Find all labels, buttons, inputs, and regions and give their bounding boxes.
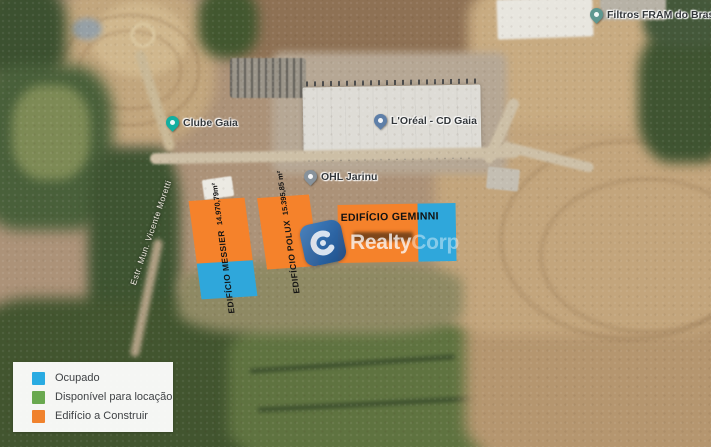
- terrain-building-roof: [486, 166, 520, 191]
- legend-swatch-disponivel: [32, 391, 45, 404]
- terrain-pasture: [12, 85, 90, 180]
- legend-item-disponivel: Disponível para locação: [32, 391, 167, 404]
- terrain-field: [228, 318, 503, 447]
- terrain-building-roof: [496, 0, 593, 40]
- satellite-map-view: Estr. Mun. Vicente Moretti EDIFÍCIO MESS…: [0, 0, 711, 447]
- legend-swatch-ocupado: [32, 372, 45, 385]
- map-pin-ohl-jarinu[interactable]: OHL Jarinu: [304, 170, 377, 183]
- map-pin-label: Filtros FRAM do Brasil: [607, 9, 711, 21]
- watermark-text: RealtyCorp: [350, 231, 459, 255]
- status-legend: Ocupado Disponível para locação Edifício…: [13, 362, 173, 432]
- legend-label: Disponível para locação: [55, 391, 172, 403]
- realtycorp-logo-icon: [298, 218, 348, 268]
- map-pin-label: L'Oréal - CD Gaia: [391, 115, 477, 127]
- terrain-forest: [638, 28, 711, 163]
- swirl-glyph: [303, 223, 343, 263]
- legend-label: Edifício a Construir: [55, 410, 148, 422]
- realtycorp-watermark: RealtyCorp: [302, 222, 459, 264]
- map-pin-clube-gaia[interactable]: Clube Gaia: [166, 116, 238, 129]
- map-pin-icon: [371, 111, 389, 129]
- map-pin-label: OHL Jarinu: [321, 171, 377, 183]
- map-pin-icon: [163, 113, 181, 131]
- legend-item-a-construir: Edifício a Construir: [32, 410, 167, 423]
- watermark-suffix: Corp: [411, 231, 459, 254]
- map-pin-icon: [301, 167, 319, 185]
- map-pin-filtros-fram[interactable]: Filtros FRAM do Brasil: [590, 8, 711, 21]
- legend-swatch-a-construir: [32, 410, 45, 423]
- terrain-parking: [230, 58, 306, 98]
- terrain-roundabout: [130, 22, 156, 48]
- map-pin-label: Clube Gaia: [183, 117, 238, 129]
- map-pin-loreal-cd-gaia[interactable]: L'Oréal - CD Gaia: [374, 114, 477, 127]
- watermark-prefix: Realty: [350, 231, 411, 254]
- terrain-pond: [72, 18, 102, 40]
- legend-label: Ocupado: [55, 372, 100, 384]
- terrain-forest: [198, 0, 258, 58]
- map-pin-icon: [587, 5, 605, 23]
- legend-item-ocupado: Ocupado: [32, 372, 167, 385]
